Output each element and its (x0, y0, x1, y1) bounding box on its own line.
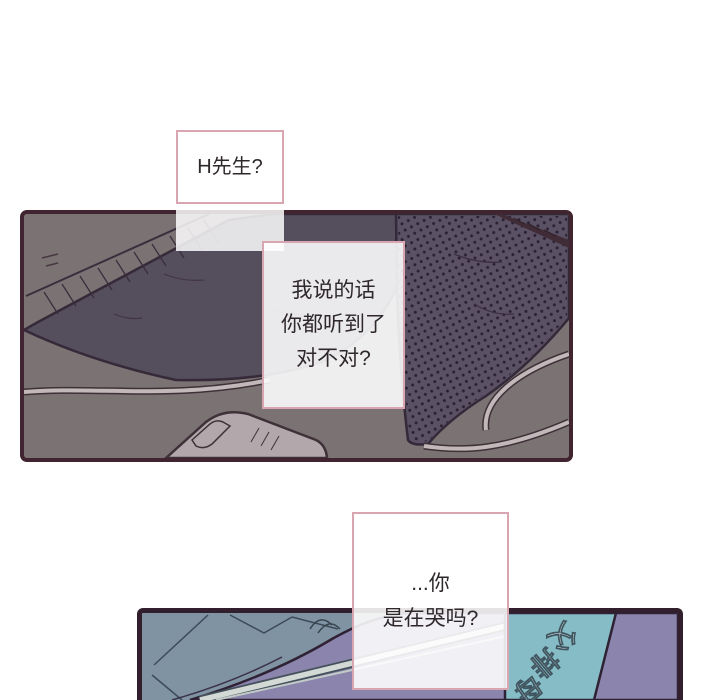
speech-bubble-2: 我说的话 你都听到了 对不对? (262, 241, 405, 409)
bubble-2-line-3: 对不对? (296, 342, 371, 376)
bubble-3-line-2: 是在哭吗? (383, 601, 479, 636)
speech-bubble-1: H先生? (176, 130, 284, 204)
bubble-2-line-2: 你都听到了 (281, 308, 386, 342)
bubble-3-line-1: ...你 (411, 566, 450, 601)
bubble-1-text: H先生? (197, 152, 263, 182)
bubble-2-line-1: 我说的话 (292, 274, 376, 308)
comic-page: 父 排 母 H先生? 我说的话 你都听到了 对不对? ...你 是在哭吗? (0, 0, 720, 700)
speech-bubble-3: ...你 是在哭吗? (352, 512, 509, 690)
